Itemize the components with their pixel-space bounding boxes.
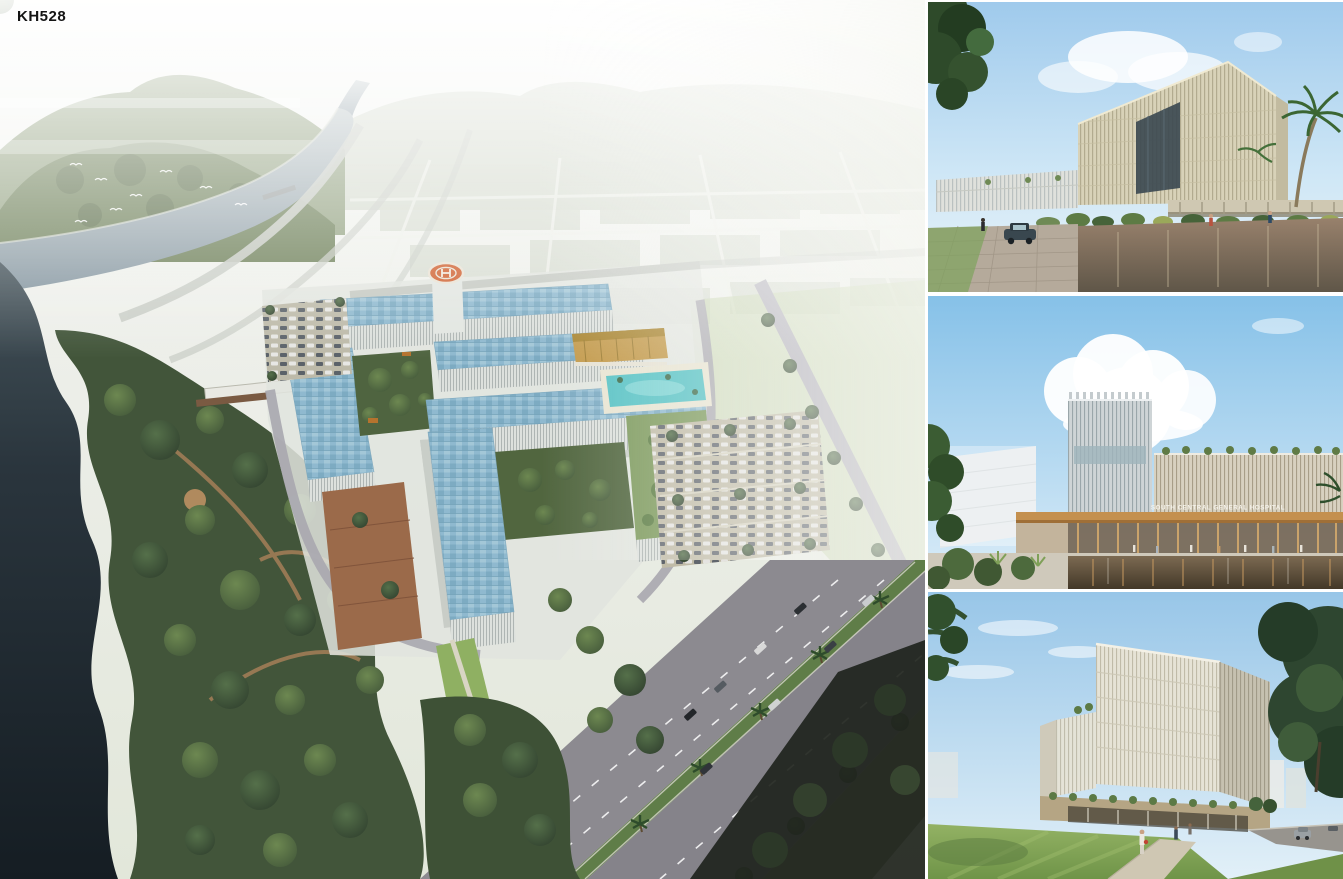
- entry-drive-scene: [928, 2, 1343, 292]
- aerial-masterplan-render: [0, 0, 925, 879]
- plaza-and-drive: [928, 218, 1343, 292]
- street-corner-scene: [928, 592, 1343, 879]
- entry-drive-render: [928, 2, 1343, 292]
- entrance-tower: [1068, 392, 1152, 512]
- hospital-signage: SOUTH CENTRAL GENERAL HOSPITAL: [1151, 505, 1285, 512]
- aerial-scene: [0, 0, 925, 879]
- main-entrance-render: SOUTH CENTRAL GENERAL HOSPITAL: [928, 296, 1343, 589]
- right-ward-block: [1154, 446, 1343, 512]
- main-entrance-scene: SOUTH CENTRAL GENERAL HOSPITAL: [928, 296, 1343, 589]
- street-corner-render: [928, 592, 1343, 879]
- project-code-label: KH528: [17, 8, 66, 25]
- presentation-board: KH528: [0, 0, 1343, 879]
- right-haze: [540, 0, 925, 560]
- entrance-colonnade: [1016, 523, 1343, 553]
